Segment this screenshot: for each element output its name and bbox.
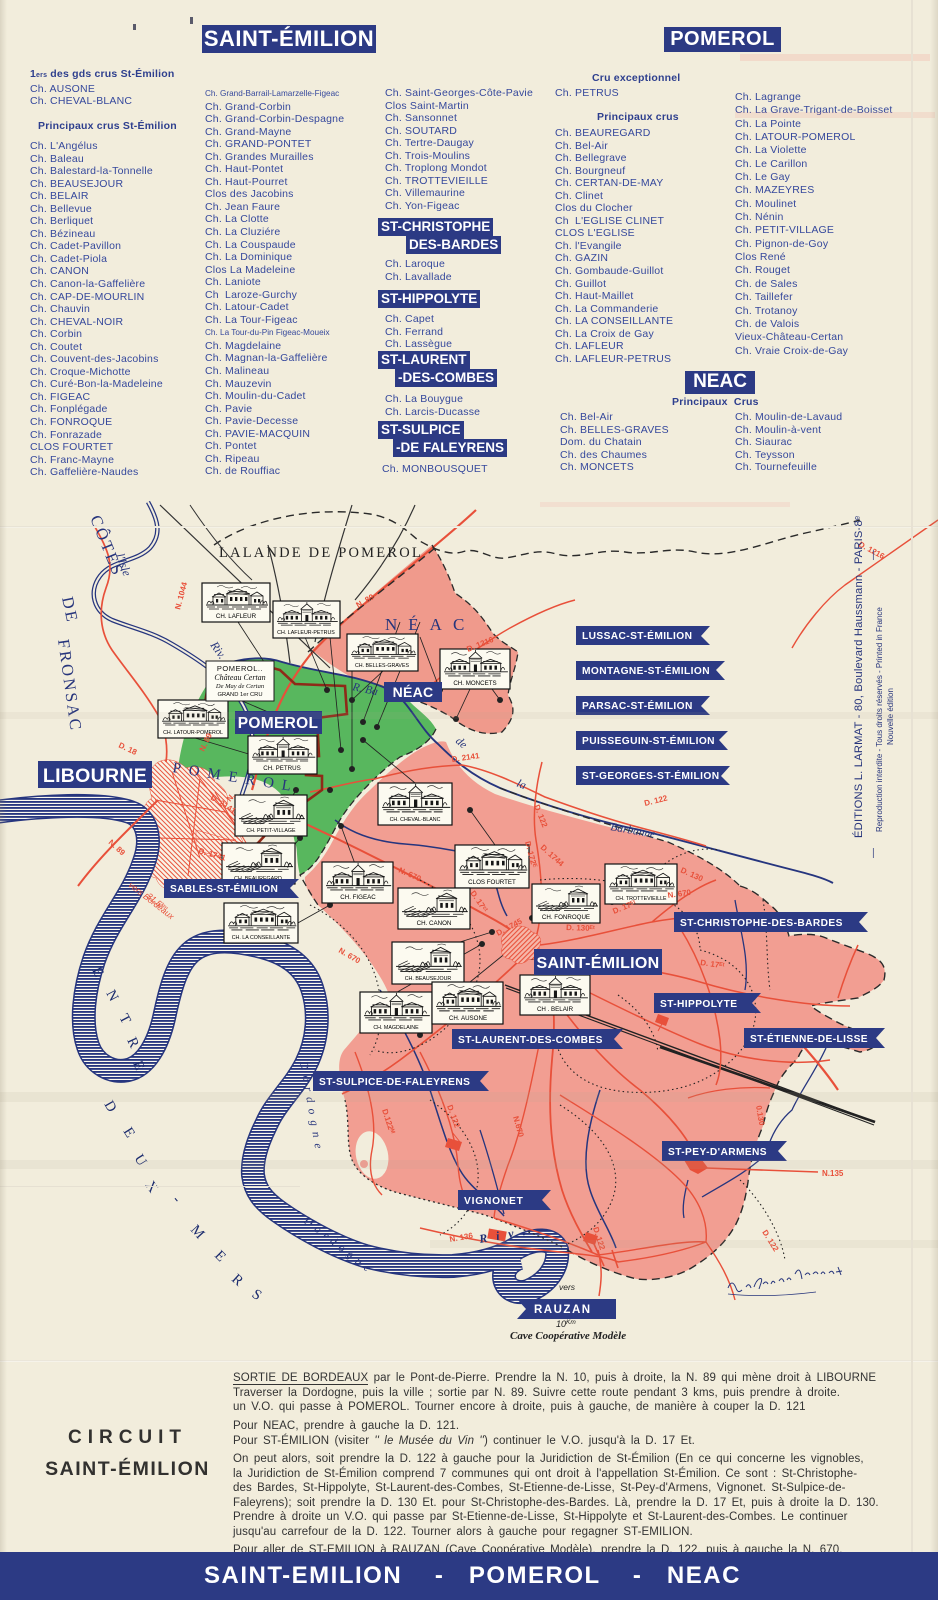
svg-text:De May de Certan: De May de Certan	[215, 683, 264, 690]
svg-text:CH. MAGDELAINE: CH. MAGDELAINE	[373, 1025, 419, 1031]
svg-text:DE: DE	[58, 595, 82, 625]
svg-text:CH. FONROQUE: CH. FONROQUE	[542, 914, 590, 921]
svg-text:-: -	[169, 1192, 184, 1206]
svg-text:R: R	[228, 1271, 246, 1290]
svg-text:D. 130ᴱᵗ: D. 130ᴱᵗ	[566, 923, 595, 933]
svg-text:NÉAC: NÉAC	[393, 684, 434, 700]
svg-text:CH. PETRUS: CH. PETRUS	[263, 765, 300, 772]
svg-text:N. 670: N. 670	[337, 946, 362, 966]
svg-text:PARSAC-ST-ÉMILION: PARSAC-ST-ÉMILION	[582, 699, 693, 712]
svg-text:la: la	[515, 778, 528, 793]
svg-text:VIGNONET: VIGNONET	[464, 1196, 524, 1207]
svg-text:CH. CHEVAL-BLANC: CH. CHEVAL-BLANC	[390, 817, 441, 823]
svg-text:CH. LAFLEUR-PETRUS: CH. LAFLEUR-PETRUS	[277, 630, 335, 636]
svg-text:ST-SULPICE-DE-FALEYRENS: ST-SULPICE-DE-FALEYRENS	[319, 1077, 470, 1088]
svg-text:10Km: 10Km	[556, 1319, 576, 1330]
svg-text:CH. MONCETS: CH. MONCETS	[453, 680, 496, 687]
svg-text:GRAND 1er CRU: GRAND 1er CRU	[217, 692, 262, 698]
svg-text:N. 1044: N. 1044	[173, 581, 189, 611]
svg-text:RAUZAN: RAUZAN	[534, 1304, 592, 1316]
svg-text:S: S	[249, 1286, 265, 1304]
svg-text:CH. LATOUR-POMEROL: CH. LATOUR-POMEROL	[163, 730, 223, 736]
svg-text:SABLES-ST-ÉMILION: SABLES-ST-ÉMILION	[170, 882, 278, 895]
svg-text:CLOS FOURTET: CLOS FOURTET	[468, 879, 516, 886]
svg-text:X: X	[142, 1178, 161, 1196]
svg-text:POMEROL..: POMEROL..	[217, 664, 263, 673]
svg-text:ST-CHRISTOPHE-DES-BARDES: ST-CHRISTOPHE-DES-BARDES	[680, 918, 843, 929]
svg-text:CH. BEAUSEJOUR: CH. BEAUSEJOUR	[405, 976, 452, 982]
svg-text:CH . BELAIR: CH . BELAIR	[537, 1006, 574, 1013]
svg-text:D. 2141: D. 2141	[451, 751, 481, 764]
svg-text:CH. BELLES-GRAVES: CH. BELLES-GRAVES	[355, 663, 410, 669]
svg-text:ÉDITIONS L. LARMAT - 80, Boule: ÉDITIONS L. LARMAT - 80, Boulevard Hauss…	[852, 516, 865, 838]
svg-text:Cave Coopérative Modèle: Cave Coopérative Modèle	[510, 1330, 626, 1342]
svg-text:T: T	[115, 1011, 133, 1026]
svg-text:N.135: N.135	[822, 1169, 844, 1178]
svg-text:CH. TROTTEVIEILLE: CH. TROTTEVIEILLE	[615, 896, 667, 902]
svg-text:de: de	[453, 735, 469, 751]
svg-text:ST-GEORGES-ST-ÉMILION: ST-GEORGES-ST-ÉMILION	[582, 769, 719, 782]
svg-text:—: —	[868, 848, 879, 858]
svg-text:vers: vers	[559, 1282, 576, 1292]
svg-text:ST-HIPPOLYTE: ST-HIPPOLYTE	[660, 999, 737, 1010]
svg-text:SAINT-ÉMILION: SAINT-ÉMILION	[536, 953, 659, 972]
svg-text:M: M	[187, 1222, 208, 1242]
svg-text:CH. CANON: CH. CANON	[417, 920, 452, 927]
svg-text:LALANDE DE POMEROL: LALANDE DE POMEROL	[219, 545, 423, 561]
svg-text:Château Certan: Château Certan	[214, 673, 265, 682]
svg-text:CH. LA CONSEILLANTE: CH. LA CONSEILLANTE	[232, 935, 291, 941]
svg-text:E: E	[211, 1248, 229, 1266]
svg-text:N: N	[102, 987, 121, 1004]
svg-text:LIBOURNE: LIBOURNE	[43, 765, 147, 787]
svg-text:CH. AUSONE: CH. AUSONE	[449, 1015, 487, 1022]
svg-text:NÉAC: NÉAC	[385, 615, 475, 634]
svg-text:LUSSAC-ST-ÉMILION: LUSSAC-ST-ÉMILION	[582, 629, 692, 642]
svg-text:E: E	[120, 1125, 138, 1141]
svg-text:Reproduction interdite - Tous: Reproduction interdite - Tous droits rés…	[875, 607, 884, 832]
svg-text:CH. PETIT-VILLAGE: CH. PETIT-VILLAGE	[246, 828, 296, 834]
svg-text:PUISSEGUIN-ST-ÉMILION: PUISSEGUIN-ST-ÉMILION	[582, 734, 715, 747]
svg-text:MONTAGNE-ST-ÉMILION: MONTAGNE-ST-ÉMILION	[582, 664, 710, 677]
svg-text:Riv.: Riv.	[207, 638, 229, 662]
svg-text:CH. FIGEAC: CH. FIGEAC	[340, 894, 376, 901]
svg-text:ST-PEY-D'ARMENS: ST-PEY-D'ARMENS	[668, 1147, 767, 1158]
svg-text:D. 18: D. 18	[117, 741, 139, 757]
svg-text:ST-ÉTIENNE-DE-LISSE: ST-ÉTIENNE-DE-LISSE	[750, 1032, 868, 1045]
svg-text:—: —	[868, 550, 879, 560]
svg-text:CH. LAFLEUR: CH. LAFLEUR	[216, 613, 257, 620]
svg-text:ST-LAURENT-DES-COMBES: ST-LAURENT-DES-COMBES	[458, 1035, 603, 1046]
svg-text:D. 122: D. 122	[643, 793, 669, 808]
